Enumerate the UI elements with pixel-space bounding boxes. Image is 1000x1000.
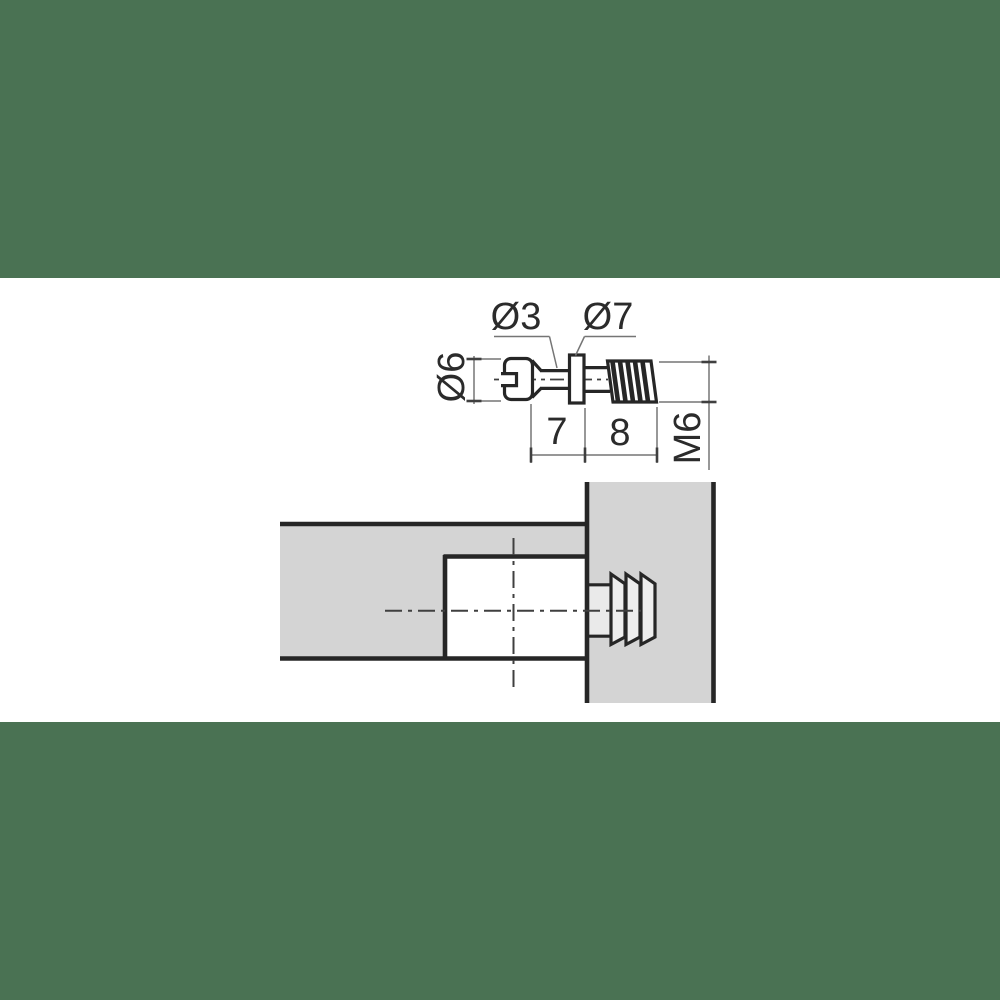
dowel-barb bbox=[611, 574, 625, 645]
installed-section-view bbox=[280, 482, 715, 703]
label-collar-diameter: Ø7 bbox=[583, 298, 634, 336]
dowel-barb bbox=[641, 574, 655, 645]
cam-hole bbox=[445, 556, 586, 657]
label-thread-size: M6 bbox=[669, 412, 707, 465]
technical-drawing-canvas bbox=[0, 0, 1000, 1000]
label-neck-length: 7 bbox=[546, 413, 567, 451]
collar bbox=[570, 355, 585, 403]
label-thread-length: 8 bbox=[609, 414, 630, 452]
fitting-side-view bbox=[494, 355, 657, 403]
dia7-leader bbox=[576, 337, 585, 356]
label-head-diameter: Ø6 bbox=[433, 352, 471, 403]
label-shaft-diameter: Ø3 bbox=[491, 298, 542, 336]
dia3-leader bbox=[550, 337, 558, 369]
dowel-barb bbox=[626, 574, 640, 645]
